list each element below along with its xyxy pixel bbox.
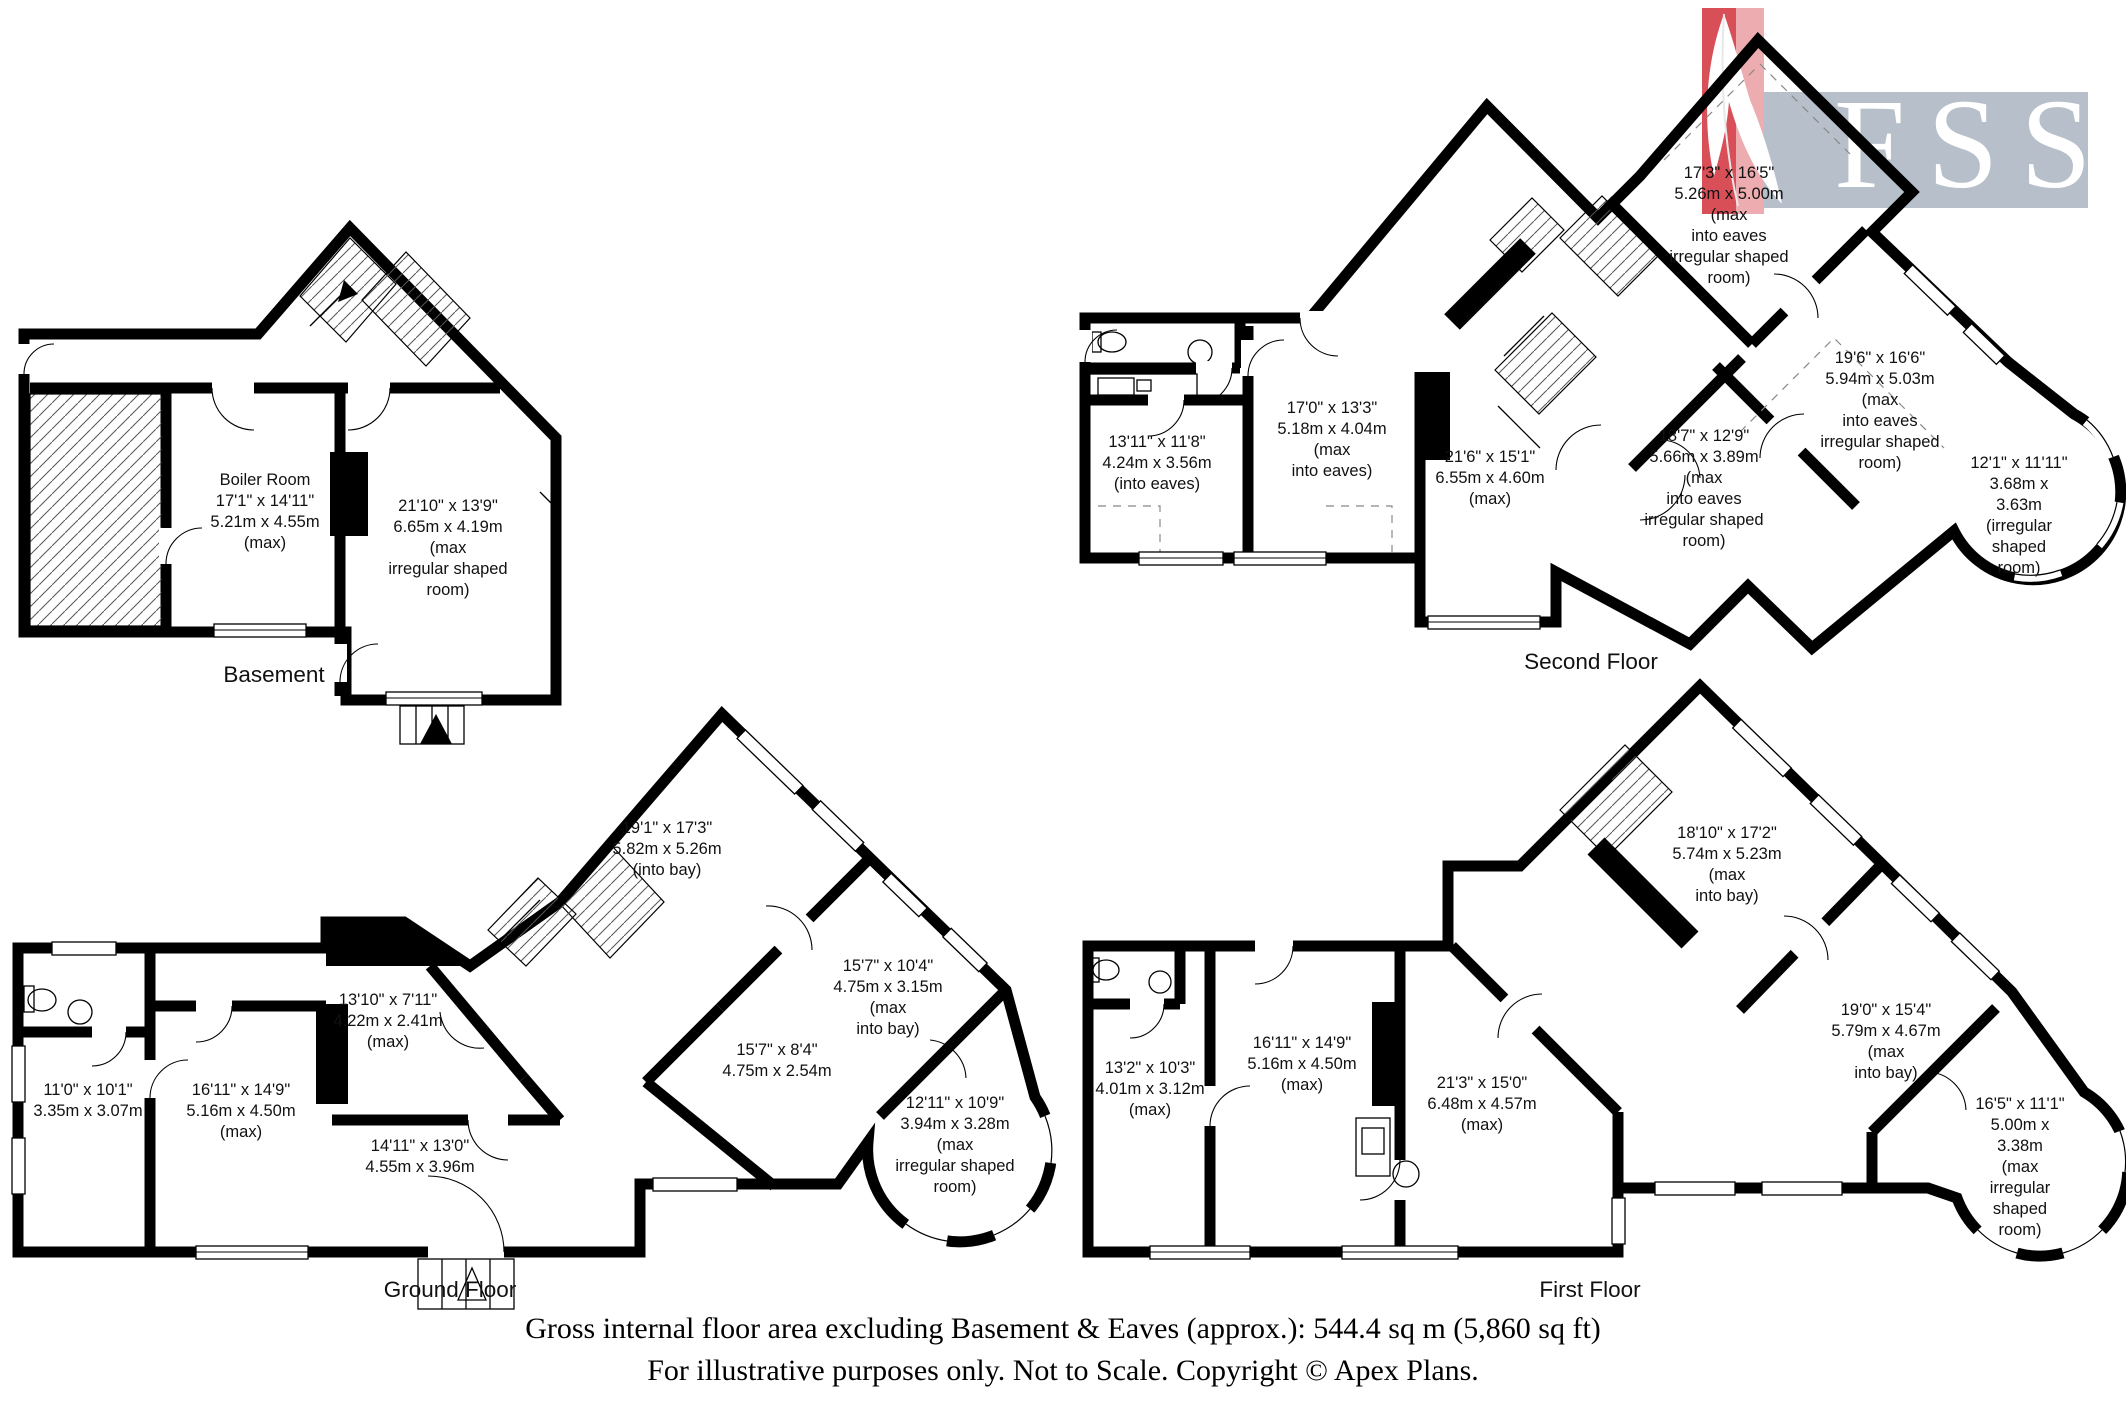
room-label-gf-room-1611: 16'11" x 14'9" 5.16m x 4.50m (max) [186,1080,295,1143]
floor-label-basement: Basement [223,662,324,688]
room-label-ff-room-132: 13'2" x 10'3" 4.01m x 3.12m (max) [1095,1058,1204,1121]
floor-label-first-floor: First Floor [1539,1277,1640,1303]
room-label-gf-room-157x84: 15'7" x 8'4" 4.75m x 2.54m [722,1040,831,1082]
room-label-sf-turret-room: 12'1" x 11'11" 3.68m x 3.63m (irregular … [1966,453,2073,579]
caption-line-2: For illustrative purposes only. Not to S… [0,1354,2126,1388]
caption-line-1: Gross internal floor area excluding Base… [0,1312,2126,1346]
room-label-gf-room-1411: 14'11" x 13'0" 4.55m x 3.96m [365,1136,474,1178]
floor-label-second-floor: Second Floor [1524,649,1658,675]
room-label-sf-room-1311: 13'11" x 11'8" 4.24m x 3.56m (into eaves… [1102,432,1211,495]
room-label-gf-room-157x104: 15'7" x 10'4" 4.75m x 3.15m (max into ba… [833,956,942,1040]
room-label-gf-hall: 13'10" x 7'11" 4.22m x 2.41m (max) [333,990,442,1053]
room-label-ff-room-190: 19'0" x 15'4" 5.79m x 4.67m (max into ba… [1831,1000,1940,1084]
floorplan-page: FSS [0,0,2126,1417]
room-label-sf-room-196: 19'6" x 16'6" 5.94m x 5.03m (max into ea… [1820,348,1939,474]
room-label-sf-room-173: 17'3" x 16'5" 5.26m x 5.00m (max into ea… [1669,163,1788,289]
room-label-ff-room-213: 21'3" x 15'0" 6.48m x 4.57m (max) [1427,1073,1536,1136]
floor-label-ground-floor: Ground Floor [384,1277,517,1303]
room-label-gf-room-110: 11'0" x 10'1" 3.35m x 3.07m [33,1080,142,1122]
room-label-ff-room-1810: 18'10" x 17'2" 5.74m x 5.23m (max into b… [1672,823,1781,907]
room-label-sf-room-187: 18'7" x 12'9" 5.66m x 3.89m (max into ea… [1644,426,1763,552]
floorplan-drawing [0,0,2126,1417]
room-label-ff-room-1611: 16'11" x 14'9" 5.16m x 4.50m (max) [1247,1033,1356,1096]
room-label-sf-room-170: 17'0" x 13'3" 5.18m x 4.04m (max into ea… [1277,398,1386,482]
room-label-gf-reception: 19'1" x 17'3" 5.82m x 5.26m (into bay) [612,818,721,881]
room-label-boiler-room: Boiler Room 17'1" x 14'11" 5.21m x 4.55m… [210,470,319,554]
room-label-sf-room-216: 21'6" x 15'1" 6.55m x 4.60m (max) [1435,447,1544,510]
room-label-ff-turret-room: 16'5" x 11'1" 5.00m x 3.38m (max irregul… [1967,1094,2073,1241]
room-label-basement-room2: 21'10" x 13'9" 6.65m x 4.19m (max irregu… [388,496,507,601]
second-floor-plan [1078,40,2121,648]
room-label-gf-turret-room: 12'11" x 10'9" 3.94m x 3.28m (max irregu… [895,1093,1014,1198]
